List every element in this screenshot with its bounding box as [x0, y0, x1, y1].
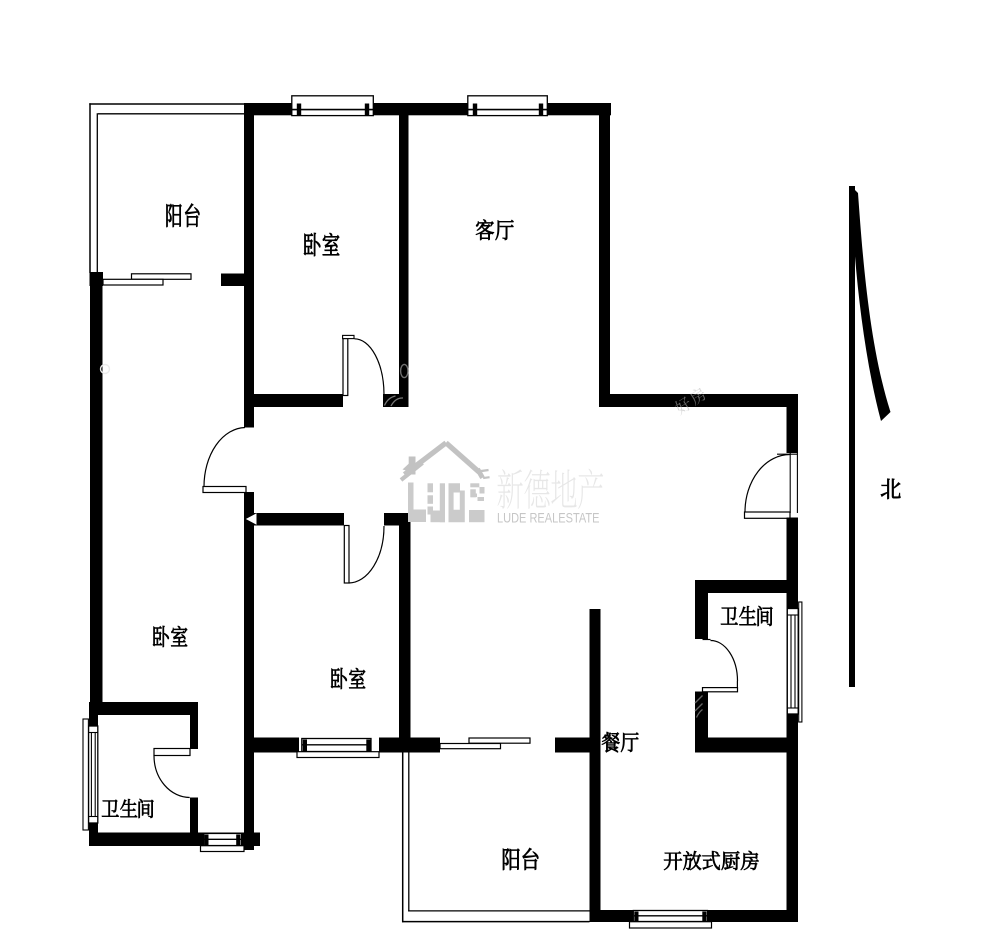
svg-text:LUDE REALESTATE: LUDE REALESTATE [497, 510, 600, 526]
